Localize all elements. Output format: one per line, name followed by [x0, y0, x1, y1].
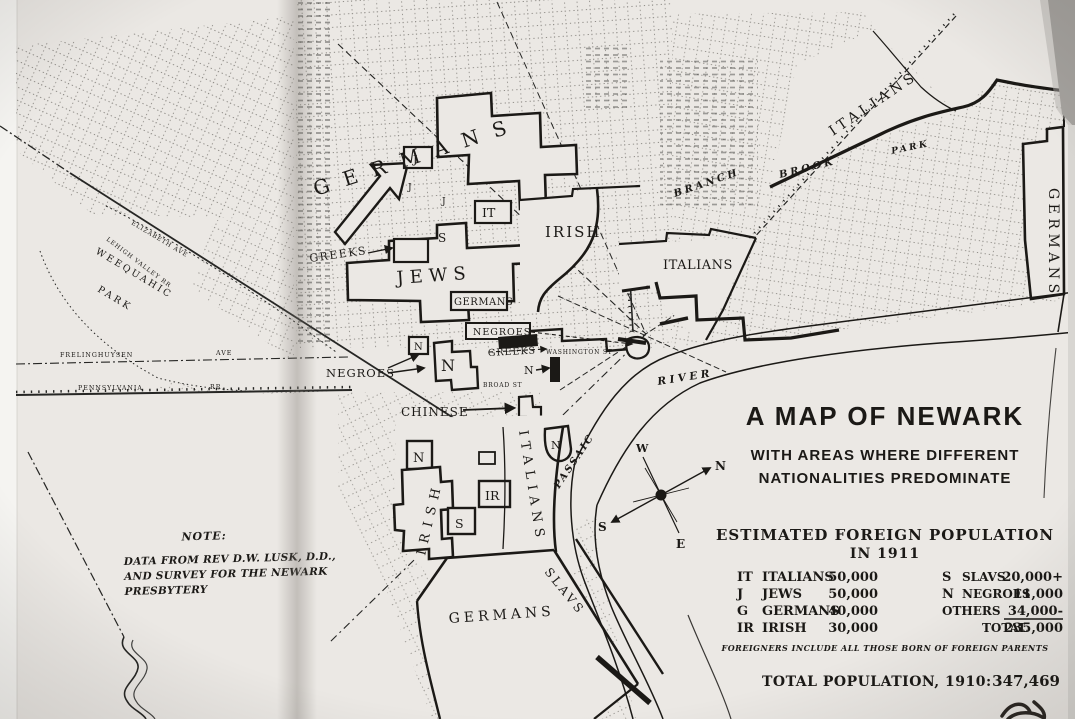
- newark-map-svg: N S W E GERMANS JEWS GERMANS NEGROES NEG…: [0, 0, 1075, 719]
- scanned-map-page: N S W E GERMANS JEWS GERMANS NEGROES NEG…: [0, 0, 1075, 719]
- photo-vignette: [0, 0, 1075, 719]
